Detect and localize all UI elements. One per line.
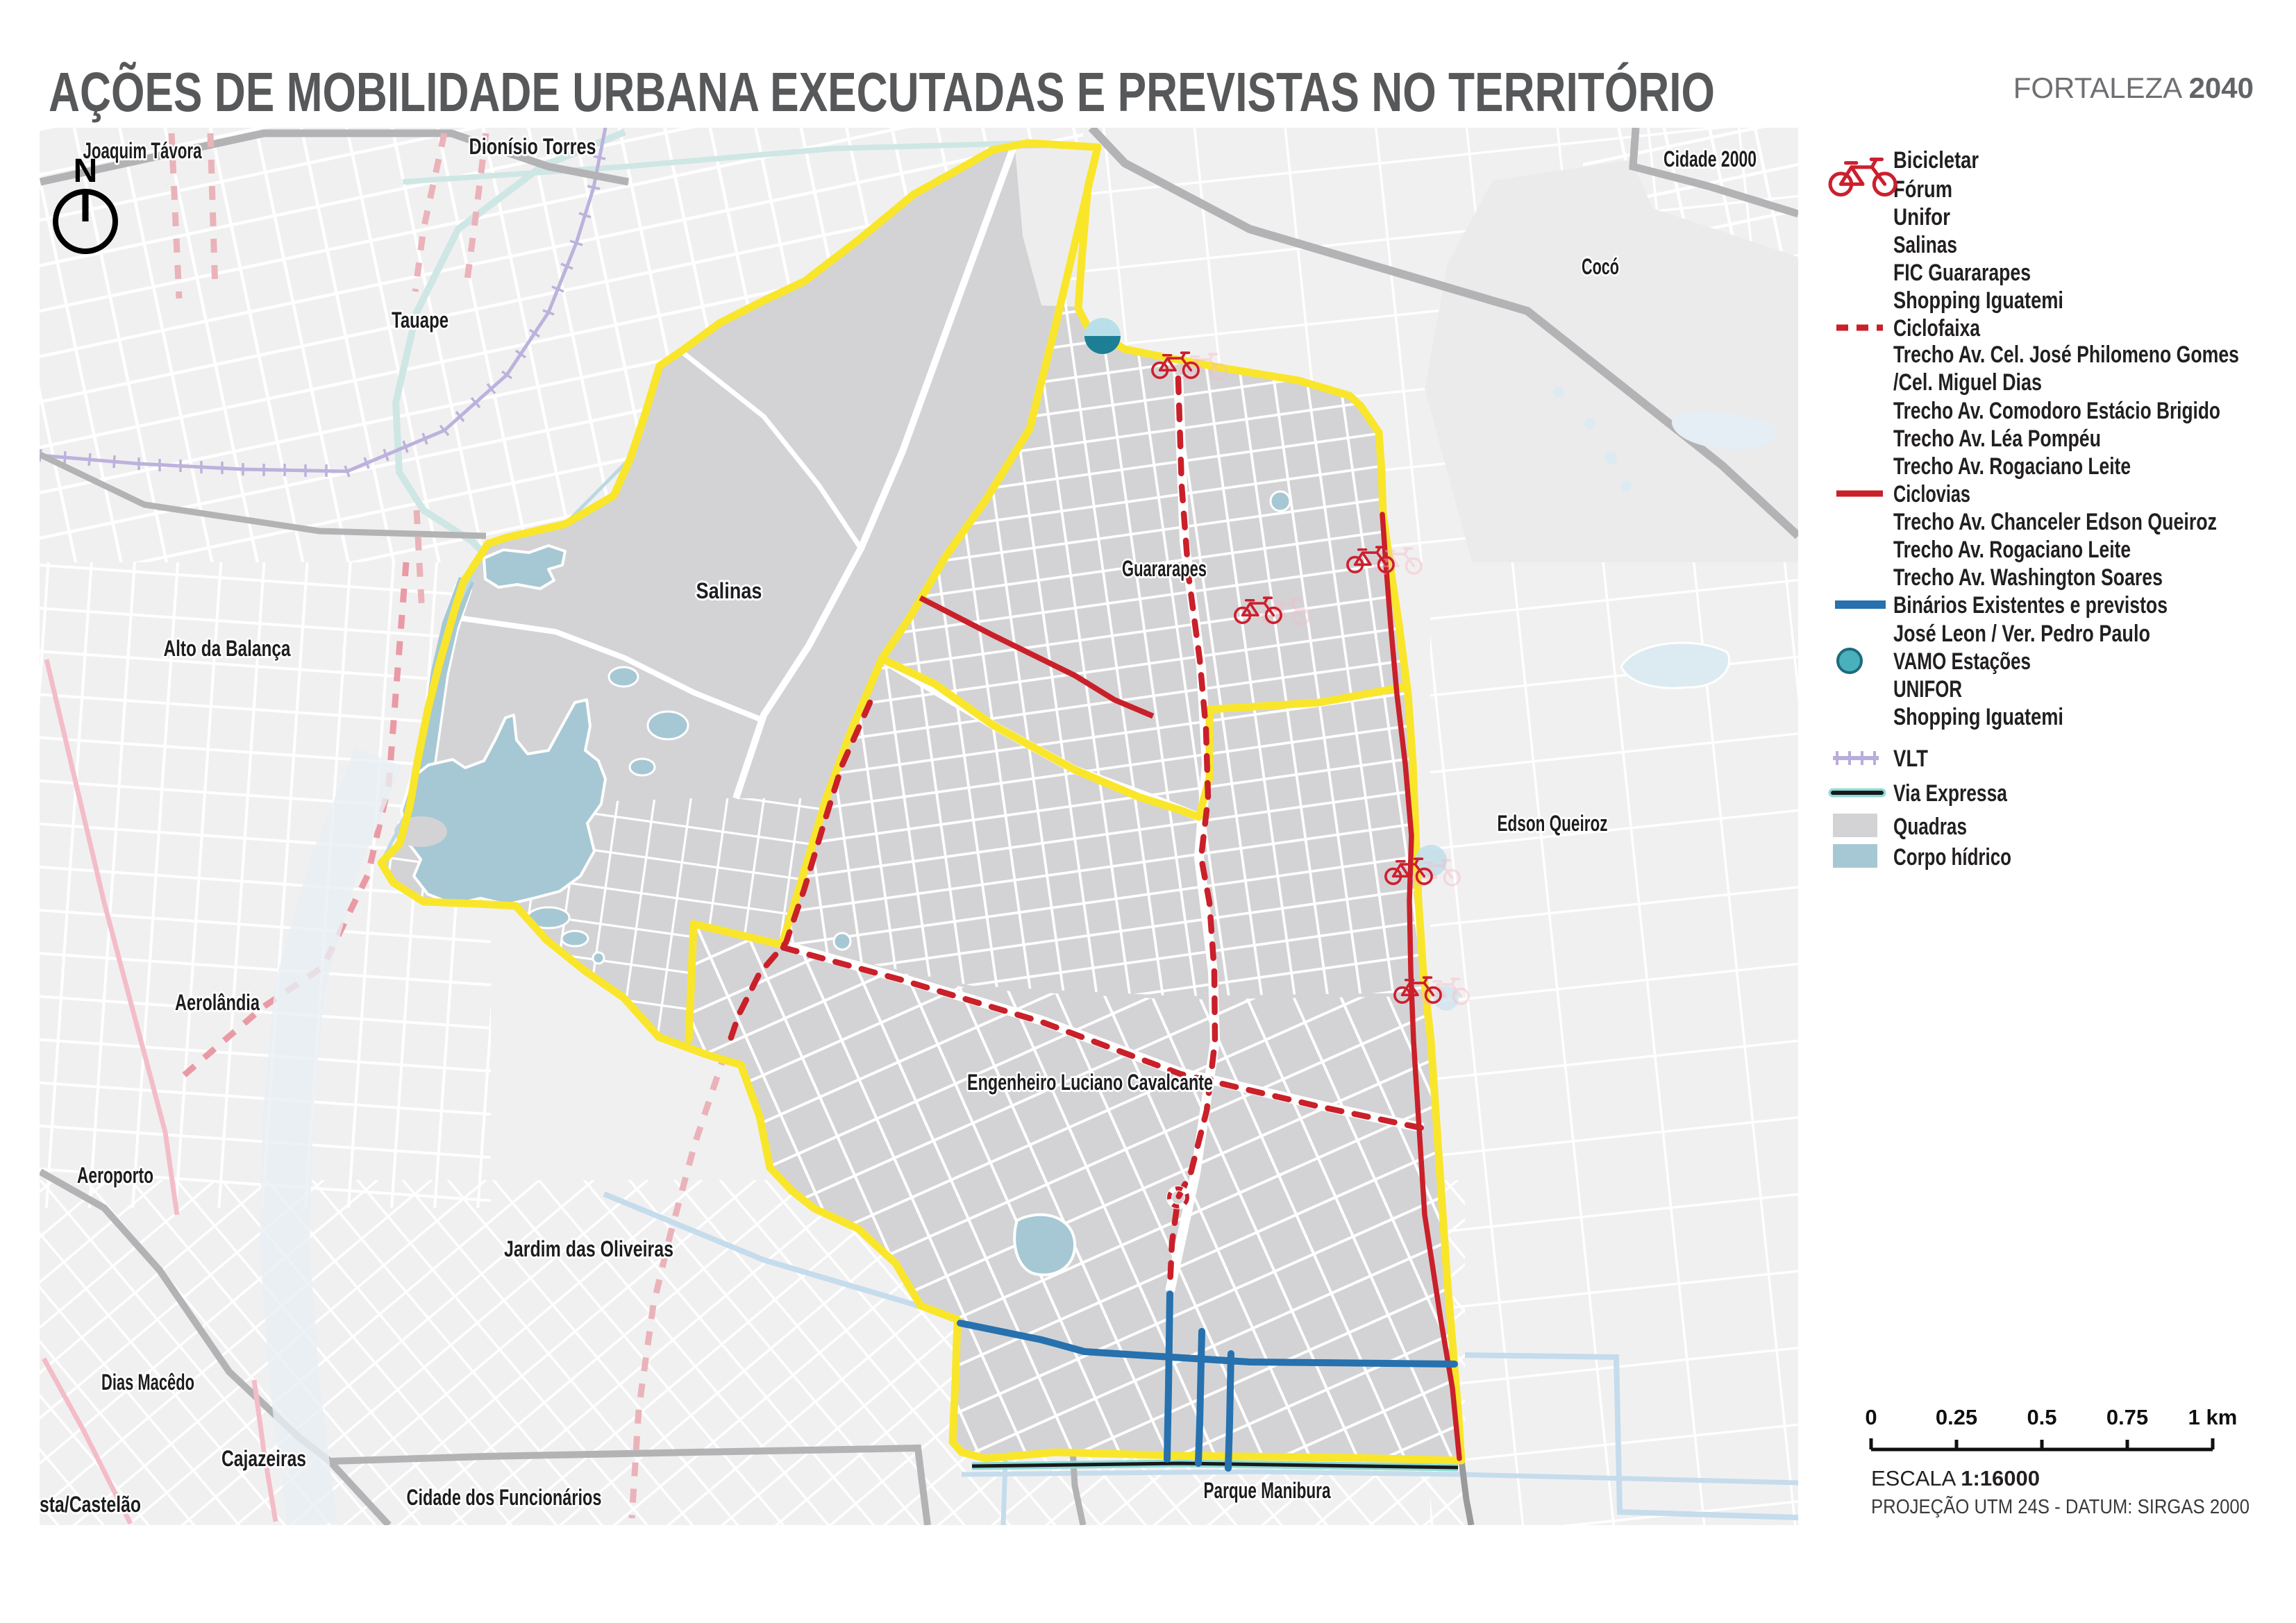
svg-text:Fórum: Fórum [1893,176,1952,203]
svg-text:Trecho Av. Rogaciano Leite: Trecho Av. Rogaciano Leite [1893,453,2131,480]
svg-text:UNIFOR: UNIFOR [1893,676,1962,703]
svg-text:Trecho Av. Comodoro Estácio Br: Trecho Av. Comodoro Estácio Brigido [1893,398,2220,424]
svg-text:Guararapes: Guararapes [1122,556,1207,581]
svg-text:0.75: 0.75 [2106,1405,2148,1429]
svg-text:Dias Macêdo: Dias Macêdo [101,1370,194,1395]
svg-text:Alto da Balança: Alto da Balança [164,636,291,661]
svg-text:sta/Castelão: sta/Castelão [40,1492,141,1517]
svg-text:/Cel. Miguel Dias: /Cel. Miguel Dias [1893,369,2042,396]
svg-text:FIC Guararapes: FIC Guararapes [1893,260,2031,286]
svg-text:Trecho Av. Washington Soares: Trecho Av. Washington Soares [1893,564,2163,591]
svg-text:Via Expressa: Via Expressa [1893,780,2008,807]
svg-text:Cidade 2000: Cidade 2000 [1664,146,1757,171]
svg-text:Parque Manibura: Parque Manibura [1204,1478,1331,1503]
svg-text:Joaquim Távora: Joaquim Távora [83,138,202,163]
svg-text:Dionísio Torres: Dionísio Torres [469,134,596,159]
svg-text:Cocó: Cocó [1582,254,1619,279]
svg-text:Aeroporto: Aeroporto [77,1163,153,1188]
svg-text:0.5: 0.5 [2027,1405,2056,1429]
svg-text:José Leon / Ver. Pedro Paulo: José Leon / Ver. Pedro Paulo [1893,621,2150,647]
svg-text:Trecho Av. Cel. José Philomeno: Trecho Av. Cel. José Philomeno Gomes [1893,342,2239,368]
svg-text:Trecho Av. Léa Pompéu: Trecho Av. Léa Pompéu [1893,426,2101,452]
svg-text:Ciclovias: Ciclovias [1893,481,1970,507]
svg-text:N: N [74,153,98,190]
svg-text:Salinas: Salinas [1893,232,1957,258]
svg-text:VAMO Estações: VAMO Estações [1893,648,2031,675]
svg-text:Tauape: Tauape [392,308,449,333]
svg-text:Shopping Iguatemi: Shopping Iguatemi [1893,287,2063,314]
svg-text:Trecho Av. Chanceler Edson Que: Trecho Av. Chanceler Edson Queiroz [1893,509,2217,535]
svg-text:0.25: 0.25 [1936,1405,1977,1429]
svg-text:Shopping Iguatemi: Shopping Iguatemi [1893,704,2063,730]
svg-text:FORTALEZA 2040: FORTALEZA 2040 [2013,72,2254,104]
svg-text:Bicicletar: Bicicletar [1893,147,1979,174]
svg-text:Corpo hídrico: Corpo hídrico [1893,844,2011,871]
svg-text:Binários Existentes e previsto: Binários Existentes e previstos [1893,592,2168,619]
svg-text:Salinas: Salinas [696,578,762,603]
svg-text:AÇÕES DE MOBILIDADE URBANA EXE: AÇÕES DE MOBILIDADE URBANA EXECUTADAS E … [49,61,1715,123]
svg-text:Quadras: Quadras [1893,814,1967,840]
svg-text:Unifor: Unifor [1893,204,1950,230]
svg-text:Aerolândia: Aerolândia [175,990,260,1015]
svg-text:Ciclofaixa: Ciclofaixa [1893,315,1981,342]
svg-text:Cidade dos Funcionários: Cidade dos Funcionários [407,1485,602,1510]
svg-text:ESCALA 1:16000: ESCALA 1:16000 [1871,1466,2040,1490]
svg-text:VLT: VLT [1893,746,1928,772]
svg-text:1 km: 1 km [2188,1405,2238,1429]
svg-text:PROJEÇÃO UTM 24S - DATUM: SIRG: PROJEÇÃO UTM 24S - DATUM: SIRGAS 2000 [1871,1495,2249,1518]
svg-text:Trecho Av. Rogaciano Leite: Trecho Av. Rogaciano Leite [1893,537,2131,563]
svg-text:Cajazeiras: Cajazeiras [221,1446,306,1471]
svg-text:Jardim das Oliveiras: Jardim das Oliveiras [504,1236,673,1261]
svg-text:Edson Queiroz: Edson Queiroz [1498,811,1608,836]
svg-text:Engenheiro Luciano Cavalcante: Engenheiro Luciano Cavalcante [967,1070,1213,1095]
svg-text:0: 0 [1865,1405,1877,1429]
